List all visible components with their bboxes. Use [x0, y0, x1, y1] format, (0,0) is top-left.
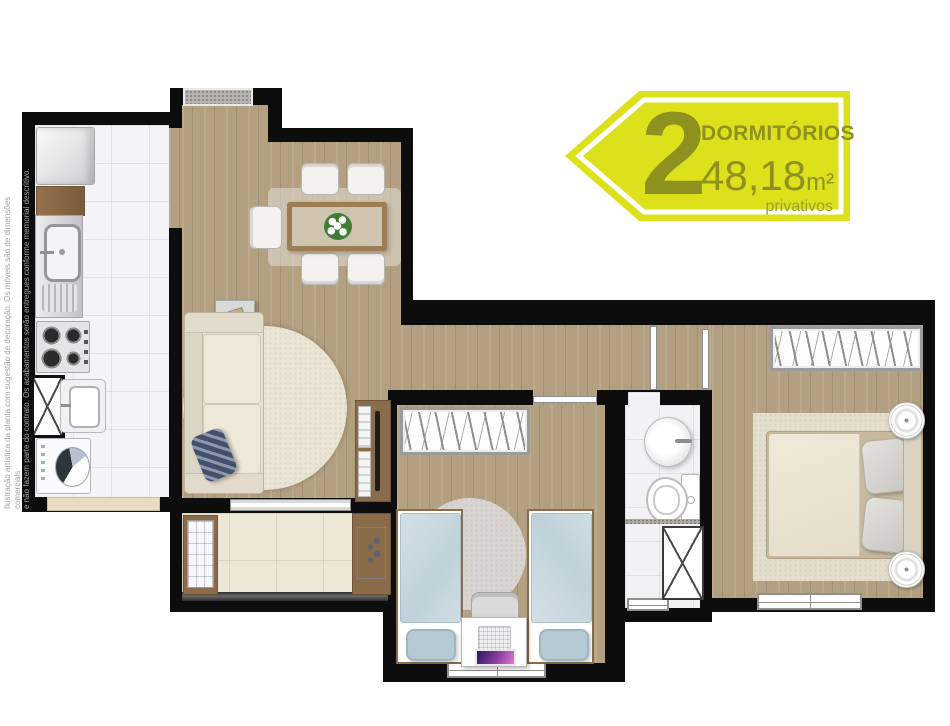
single-bed-right-icon — [527, 509, 594, 664]
sofa-armrest-top — [185, 313, 263, 333]
nightstand-top-icon — [888, 402, 925, 439]
bedroom2-door-leaf — [533, 396, 597, 403]
living-room-floor-upper — [182, 105, 268, 142]
dining-chair-top-left — [301, 163, 339, 195]
badge-area-line: 48,18m² — [701, 154, 833, 198]
single-bed-left-icon — [396, 509, 463, 664]
sink-drain-icon — [59, 249, 65, 255]
dining-window-sill — [183, 88, 253, 106]
toilet-flush-button — [687, 496, 695, 504]
toilet-icon — [646, 474, 700, 522]
master-bedroom-window — [757, 593, 862, 610]
badge-bedroom-count: 2 — [641, 106, 707, 203]
disclaimer-line-2: e não fazem parte do contrato. Os acabam… — [22, 164, 32, 509]
washer-controls-icon — [41, 445, 45, 485]
laundry-tub-faucet-icon — [61, 404, 71, 407]
double-bed-blanket — [769, 434, 860, 556]
master-wardrobe-icon — [770, 326, 923, 371]
hallway-floor — [401, 325, 712, 390]
bathroom-sink-icon — [644, 417, 692, 467]
flower-vase-icon — [324, 213, 352, 240]
sink-faucet-icon — [40, 251, 54, 254]
tv-rack-shelf-2 — [358, 451, 371, 497]
balcony-glass-panel-icon — [187, 520, 214, 588]
tv-rack-icon — [355, 400, 391, 502]
laundry-tub-icon — [60, 379, 106, 433]
floor-plan-canvas: 2 DORMITÓRIOS 48,18m² privativos Ilustra… — [0, 0, 950, 726]
sink-drainboard-icon — [42, 284, 77, 312]
stove-knobs-icon — [84, 330, 88, 366]
bedroom2-wardrobe-icon — [400, 407, 530, 455]
balcony-sliding-door — [230, 499, 351, 511]
info-badge: 2 DORMITÓRIOS 48,18m² privativos — [563, 88, 853, 224]
single-bed-right-pillow-icon — [539, 629, 589, 661]
single-bed-left-pillow-icon — [406, 629, 456, 661]
disclaimer-text: Ilustração artística da planta com suges… — [3, 164, 32, 509]
stove-icon — [36, 321, 90, 373]
dining-chair-left — [249, 206, 282, 249]
washing-machine-icon — [36, 438, 91, 494]
single-bed-left-blanket — [400, 513, 461, 623]
disclaimer-line-1: Ilustração artística da planta com suges… — [3, 164, 22, 509]
badge-text-column: DORMITÓRIOS 48,18m² privativos — [701, 122, 833, 216]
kitchen-passage-floor — [169, 128, 182, 228]
barbecue-counter-icon — [352, 513, 391, 595]
balcony-cabinet-icon — [183, 515, 218, 595]
laptop-keyboard-icon — [478, 626, 511, 650]
sofa-cushion-1 — [203, 334, 261, 404]
dining-chair-top-right — [347, 163, 385, 195]
master-bedroom-door-leaf — [702, 329, 709, 389]
laptop-screen-icon — [475, 649, 516, 666]
nightstand-bottom-icon — [888, 551, 925, 588]
kitchen-sink-unit-icon — [35, 215, 83, 318]
dining-chair-bottom-left — [301, 253, 339, 285]
headboard-icon — [903, 428, 922, 562]
toilet-seat — [653, 485, 680, 515]
barbecue-grill-icon — [357, 527, 386, 579]
dining-table-icon — [287, 202, 387, 251]
dining-chair-bottom-right — [347, 253, 385, 285]
tv-rack-shelf-1 — [358, 406, 371, 448]
bathroom-door-leaf — [650, 326, 657, 390]
shower-divider — [625, 519, 700, 524]
badge-area-value: 48,18 — [701, 152, 806, 199]
desk-icon — [461, 617, 527, 667]
badge-area-unit: m² — [806, 169, 834, 196]
single-bed-right-blanket — [531, 513, 592, 623]
kitchen-service-threshold — [47, 497, 160, 511]
tv-icon — [375, 411, 380, 491]
laundry-tub-bowl-icon — [69, 386, 100, 428]
washer-door-icon — [55, 447, 90, 487]
double-bed-icon — [766, 431, 912, 559]
bathroom-faucet-icon — [675, 439, 692, 443]
bathroom-door-opening — [628, 392, 660, 408]
kitchen-counter-icon — [36, 186, 85, 216]
shower-box-icon — [662, 526, 704, 600]
badge-sublabel: privativos — [701, 198, 833, 216]
sofa-icon — [184, 312, 264, 494]
sink-bowl-icon — [44, 224, 81, 282]
fridge-icon — [36, 127, 95, 185]
badge-label: DORMITÓRIOS — [701, 122, 833, 146]
